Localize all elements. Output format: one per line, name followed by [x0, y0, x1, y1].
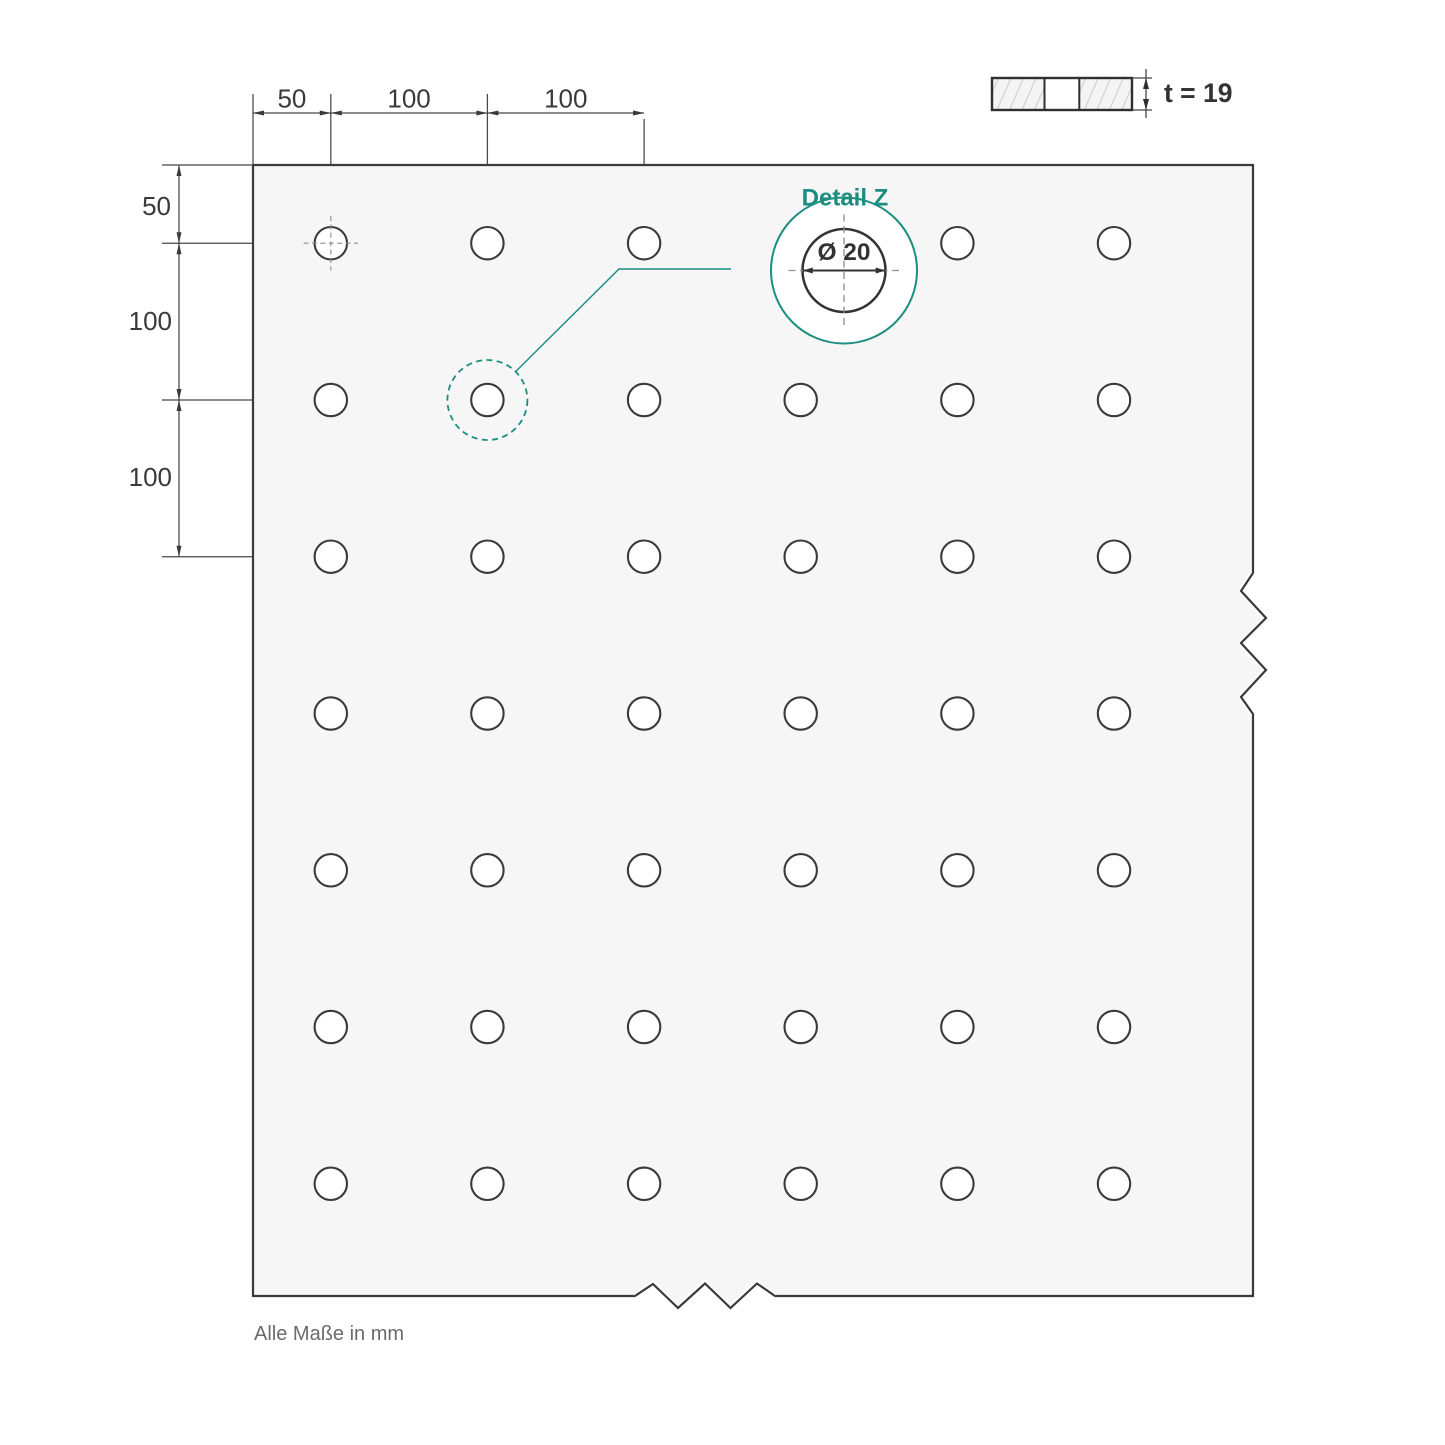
svg-text:100: 100: [544, 84, 587, 114]
svg-text:50: 50: [142, 191, 171, 221]
svg-text:t = 19: t = 19: [1164, 78, 1233, 108]
svg-text:100: 100: [387, 84, 430, 114]
svg-text:Ø 20: Ø 20: [817, 239, 870, 266]
svg-text:100: 100: [129, 462, 172, 492]
svg-text:Alle Maße in mm: Alle Maße in mm: [254, 1323, 404, 1345]
svg-text:Detail Z: Detail Z: [802, 185, 889, 212]
svg-text:50: 50: [277, 84, 306, 114]
svg-text:100: 100: [129, 306, 172, 336]
